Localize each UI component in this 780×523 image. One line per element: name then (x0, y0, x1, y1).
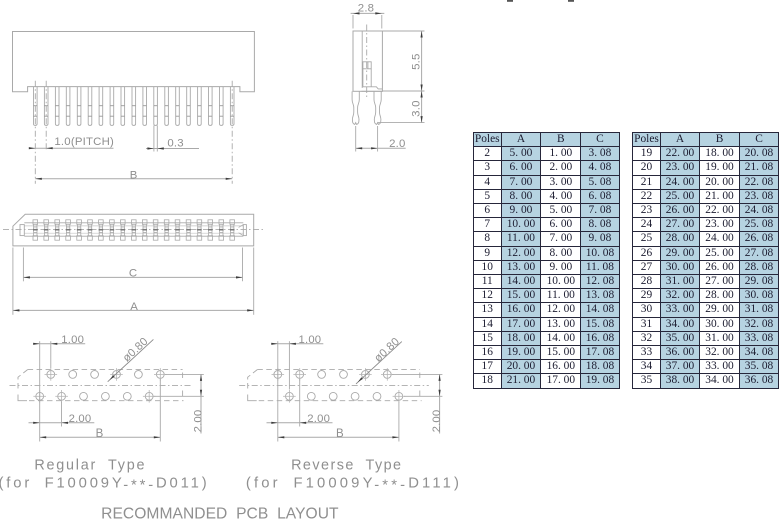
svg-text:B: B (336, 428, 344, 440)
svg-text:(for F10009Y-**-D011): (for F10009Y-**-D011) (0, 476, 209, 494)
svg-text:2.8: 2.8 (358, 2, 374, 14)
svg-text:2.00: 2.00 (69, 413, 92, 425)
svg-text:RECOMMANDED PCB LAYOUT: RECOMMANDED PCB LAYOUT (101, 505, 339, 522)
svg-text:Reverse Type: Reverse Type (291, 458, 402, 474)
svg-text:1.00: 1.00 (299, 334, 322, 346)
svg-text:1.0(PITCH): 1.0(PITCH) (54, 136, 114, 148)
svg-text:ø0.80: ø0.80 (372, 336, 402, 365)
svg-text:ø0.80: ø0.80 (121, 336, 151, 365)
svg-text:0.3: 0.3 (167, 138, 183, 150)
svg-text:A: A (130, 301, 138, 313)
svg-text:B: B (130, 169, 138, 181)
svg-text:1.00: 1.00 (61, 334, 84, 346)
svg-text:2.0: 2.0 (389, 138, 405, 150)
svg-text:5.5: 5.5 (410, 53, 422, 69)
svg-text:B: B (96, 428, 104, 440)
svg-text:2.00: 2.00 (431, 410, 443, 433)
svg-text:3.0: 3.0 (410, 100, 422, 116)
svg-text:C: C (129, 267, 137, 279)
svg-text:2.00: 2.00 (193, 410, 205, 433)
svg-text:2.00: 2.00 (307, 413, 330, 425)
svg-text:Regular Type: Regular Type (34, 458, 146, 474)
svg-text:(for F10009Y-**-D111): (for F10009Y-**-D111) (246, 476, 462, 494)
